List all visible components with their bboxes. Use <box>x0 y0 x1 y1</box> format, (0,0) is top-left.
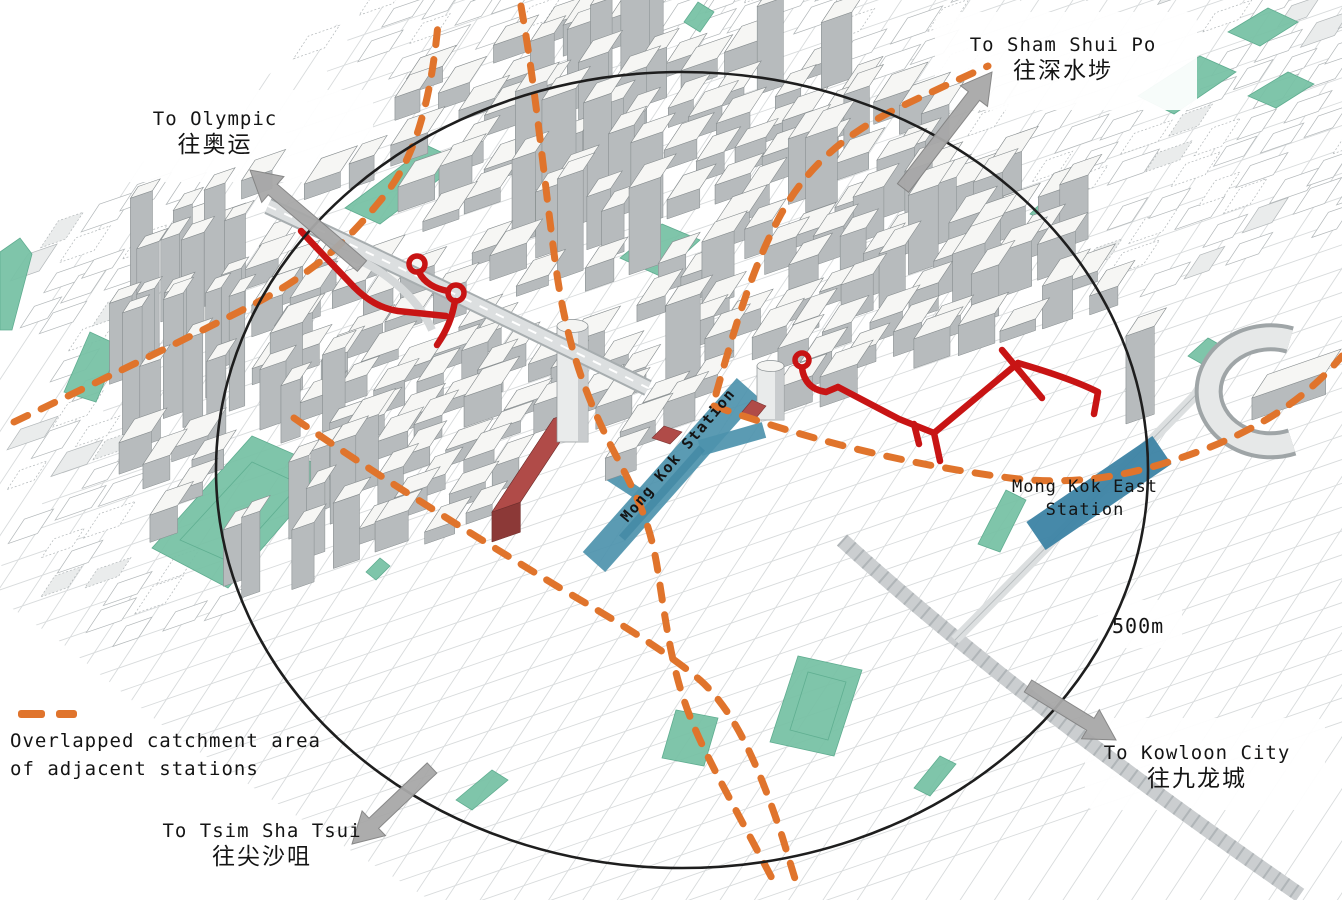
mong-kok-east-station-label: Mong Kok East Station <box>1012 476 1158 522</box>
direction-text-zh: 往深水埗 <box>970 57 1157 85</box>
direction-text-en: To Tsim Sha Tsui <box>162 820 361 843</box>
direction-text-en: To Sham Shui Po <box>970 34 1157 57</box>
direction-label-sham-shui-po: To Sham Shui Po 往深水埗 <box>970 34 1157 85</box>
scale-label-500m: 500m <box>1112 614 1164 638</box>
direction-label-olympic: To Olympic 往奥运 <box>153 108 277 159</box>
legend-text-line1: Overlapped catchment area <box>10 727 321 755</box>
legend-dash-icon <box>56 710 77 718</box>
direction-text-en: To Kowloon City <box>1104 742 1291 765</box>
direction-text-zh: 往尖沙咀 <box>162 843 361 871</box>
map-canvas: To Sham Shui Po 往深水埗 To Olympic 往奥运 To T… <box>0 0 1342 900</box>
direction-label-kowloon-city: To Kowloon City 往九龙城 <box>1104 742 1291 793</box>
legend-dash-icon <box>18 710 45 718</box>
direction-text-en: To Olympic <box>153 108 277 131</box>
direction-text-zh: 往九龙城 <box>1104 765 1291 793</box>
station-label-line2: Station <box>1012 499 1158 522</box>
legend: Overlapped catchment area of adjacent st… <box>10 710 321 783</box>
direction-text-zh: 往奥运 <box>153 131 277 159</box>
legend-dash-symbol <box>18 710 321 718</box>
station-label-line1: Mong Kok East <box>1012 476 1158 499</box>
direction-label-tsim-sha-tsui: To Tsim Sha Tsui 往尖沙咀 <box>162 820 361 871</box>
legend-text-line2: of adjacent stations <box>10 755 321 783</box>
